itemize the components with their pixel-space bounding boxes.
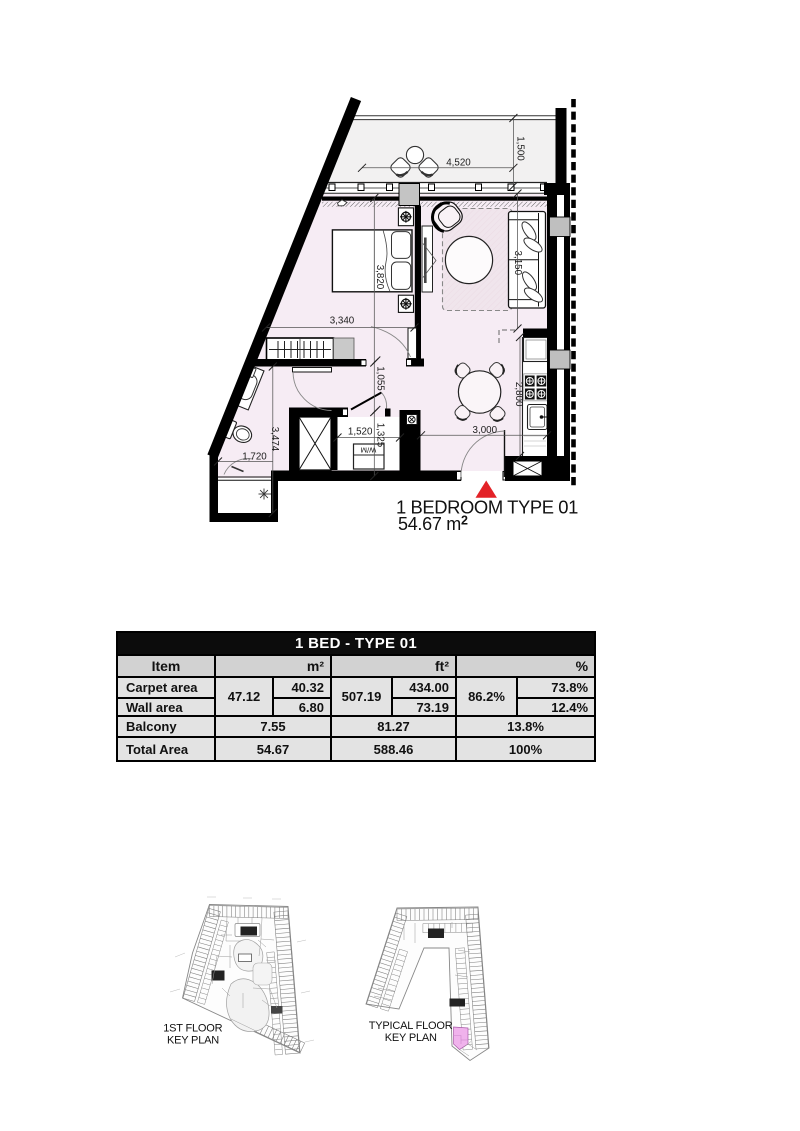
svg-text:3,150: 3,150 — [512, 251, 523, 276]
svg-text:1,325: 1,325 — [375, 423, 386, 448]
svg-text:KEY PLAN: KEY PLAN — [167, 1034, 219, 1046]
svg-text:W/M: W/M — [361, 446, 376, 455]
svg-text:2,800: 2,800 — [513, 382, 524, 407]
svg-text:3,474: 3,474 — [269, 427, 280, 452]
svg-text:1,055: 1,055 — [375, 366, 386, 391]
svg-text:1,720: 1,720 — [242, 451, 267, 462]
svg-text:3,340: 3,340 — [330, 316, 355, 327]
svg-text:1,520: 1,520 — [348, 426, 373, 437]
svg-text:TYPICAL FLOOR: TYPICAL FLOOR — [369, 1020, 453, 1032]
svg-text:3,000: 3,000 — [473, 425, 498, 436]
svg-text:4,520: 4,520 — [446, 158, 471, 169]
svg-text:1,500: 1,500 — [514, 136, 525, 161]
svg-text:KEY PLAN: KEY PLAN — [385, 1032, 437, 1044]
svg-text:3,820: 3,820 — [374, 265, 385, 290]
svg-text:1ST FLOOR: 1ST FLOOR — [163, 1023, 222, 1035]
svg-text:54.67 m2: 54.67 m2 — [398, 514, 468, 535]
